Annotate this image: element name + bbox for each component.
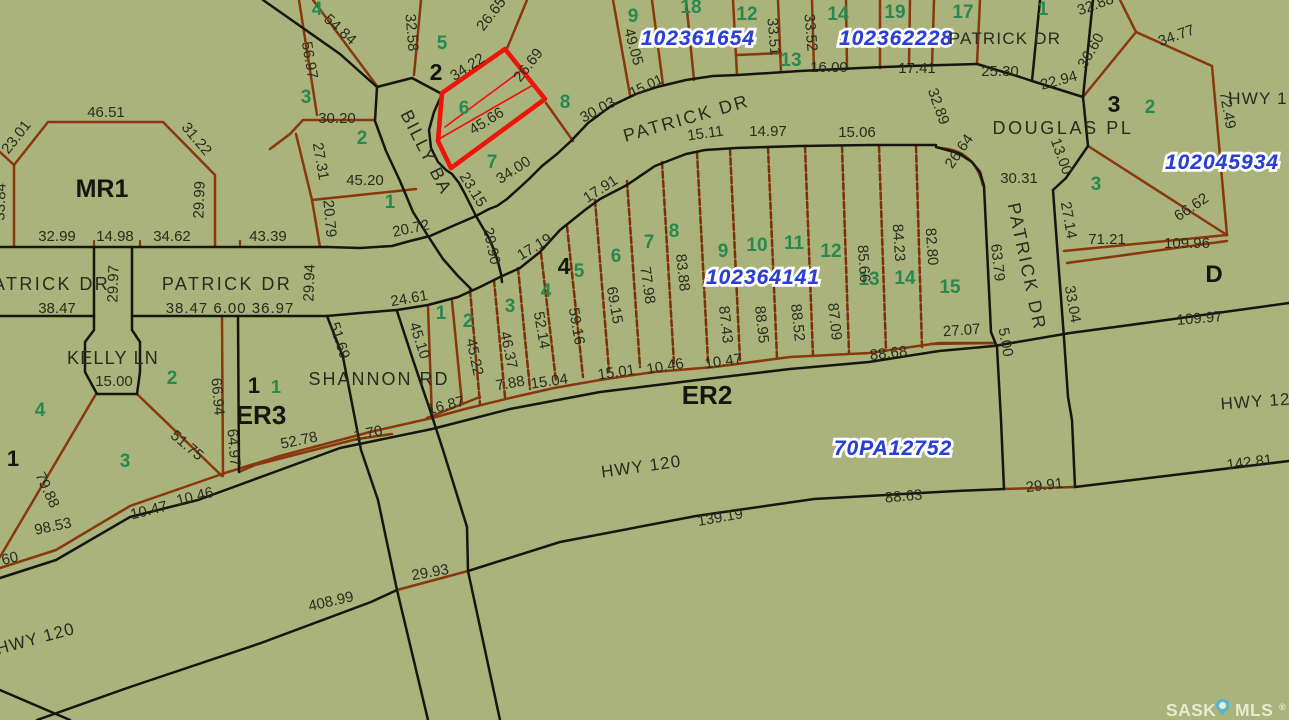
svg-text:46.51: 46.51	[87, 104, 125, 121]
svg-text:38.47: 38.47	[38, 300, 76, 317]
svg-text:88.63: 88.63	[884, 486, 923, 506]
svg-text:SASK: SASK	[1166, 700, 1216, 720]
svg-text:43.39: 43.39	[249, 228, 287, 245]
svg-text:10: 10	[746, 235, 767, 256]
svg-text:MR1: MR1	[76, 175, 129, 203]
svg-text:6: 6	[459, 98, 470, 119]
svg-text:PATRICK DR: PATRICK DR	[949, 29, 1061, 48]
svg-text:4: 4	[541, 281, 552, 302]
svg-text:2: 2	[357, 128, 368, 149]
svg-text:71.21: 71.21	[1088, 231, 1126, 248]
svg-text:2: 2	[463, 311, 474, 332]
svg-text:84.23: 84.23	[889, 223, 909, 262]
svg-text:34.62: 34.62	[153, 228, 191, 245]
svg-text:66.94: 66.94	[207, 377, 227, 416]
svg-text:1: 1	[436, 303, 447, 324]
svg-text:1: 1	[271, 377, 281, 397]
svg-text:27.07: 27.07	[942, 321, 981, 341]
svg-text:®: ®	[1279, 702, 1286, 712]
svg-text:11: 11	[784, 233, 805, 254]
svg-text:1: 1	[1038, 0, 1049, 20]
svg-text:45.20: 45.20	[346, 172, 384, 189]
svg-text:32.99: 32.99	[38, 228, 76, 245]
svg-text:64.97: 64.97	[223, 428, 243, 467]
svg-text:33.51: 33.51	[763, 17, 783, 56]
svg-text:5: 5	[437, 33, 448, 54]
svg-text:PATRICK DR: PATRICK DR	[162, 274, 292, 294]
svg-text:14: 14	[894, 268, 916, 289]
svg-text:6: 6	[611, 246, 622, 267]
svg-text:17: 17	[952, 2, 973, 23]
svg-text:30.31: 30.31	[1000, 170, 1038, 187]
svg-text:8: 8	[560, 92, 571, 113]
svg-text:3: 3	[1091, 174, 1102, 195]
svg-text:15.06: 15.06	[838, 124, 876, 141]
svg-text:82.80: 82.80	[922, 227, 942, 266]
svg-text:29.94: 29.94	[300, 264, 318, 302]
svg-text:8: 8	[669, 221, 680, 242]
svg-text:12: 12	[820, 241, 841, 262]
svg-text:85.66: 85.66	[854, 244, 874, 283]
svg-text:30.20: 30.20	[318, 110, 356, 127]
svg-text:7: 7	[644, 232, 655, 253]
svg-text:4: 4	[312, 0, 323, 20]
svg-text:4: 4	[558, 253, 571, 279]
svg-text:29.99: 29.99	[190, 181, 208, 219]
svg-text:1: 1	[385, 192, 396, 213]
svg-text:1: 1	[7, 446, 19, 471]
svg-text:KELLY LN: KELLY LN	[67, 348, 159, 368]
svg-text:70PA12752: 70PA12752	[834, 437, 952, 460]
svg-text:102362228: 102362228	[839, 27, 953, 50]
svg-text:17.41: 17.41	[898, 60, 936, 77]
svg-text:20.79: 20.79	[319, 199, 339, 238]
svg-text:ER2: ER2	[682, 380, 733, 410]
svg-text:7: 7	[487, 152, 498, 173]
svg-text:2: 2	[167, 368, 178, 389]
svg-text:HWY 1: HWY 1	[1228, 89, 1288, 108]
svg-text:32.58: 32.58	[401, 13, 421, 52]
svg-text:15.00: 15.00	[95, 373, 133, 390]
svg-text:14.97: 14.97	[749, 123, 787, 140]
svg-text:3: 3	[1108, 91, 1121, 117]
svg-text:5: 5	[574, 261, 585, 282]
svg-text:19: 19	[884, 2, 905, 23]
svg-text:18: 18	[680, 0, 701, 18]
svg-text:38.47 6.00 36.97: 38.47 6.00 36.97	[166, 300, 295, 317]
svg-text:SHANNON RD: SHANNON RD	[308, 369, 449, 389]
svg-text:14.98: 14.98	[96, 228, 134, 245]
svg-text:9: 9	[628, 6, 639, 27]
svg-text:MLS: MLS	[1235, 700, 1273, 720]
svg-text:3: 3	[301, 87, 312, 108]
svg-text:16.00: 16.00	[810, 59, 848, 76]
svg-text:3: 3	[120, 451, 131, 472]
svg-text:2: 2	[1145, 97, 1156, 118]
svg-text:109.96: 109.96	[1164, 235, 1210, 252]
svg-text:1: 1	[248, 373, 260, 398]
svg-text:2: 2	[430, 59, 443, 85]
svg-text:25.30: 25.30	[981, 63, 1019, 80]
svg-text:12: 12	[736, 4, 757, 25]
svg-text:4: 4	[35, 400, 46, 421]
svg-text:102045934: 102045934	[1165, 151, 1279, 174]
svg-text:ER3: ER3	[236, 400, 287, 430]
svg-text:D: D	[1205, 261, 1222, 288]
svg-text:29.97: 29.97	[104, 265, 122, 303]
svg-text:14: 14	[827, 4, 849, 25]
svg-text:33.84: 33.84	[0, 183, 10, 221]
svg-text:15: 15	[939, 277, 961, 298]
svg-text:102364141: 102364141	[706, 266, 820, 289]
svg-text:PATRICK DR: PATRICK DR	[0, 274, 110, 294]
svg-text:9: 9	[718, 241, 729, 262]
svg-text:3: 3	[505, 296, 516, 317]
svg-text:102361654: 102361654	[641, 27, 755, 50]
svg-text:33.52: 33.52	[800, 13, 820, 52]
